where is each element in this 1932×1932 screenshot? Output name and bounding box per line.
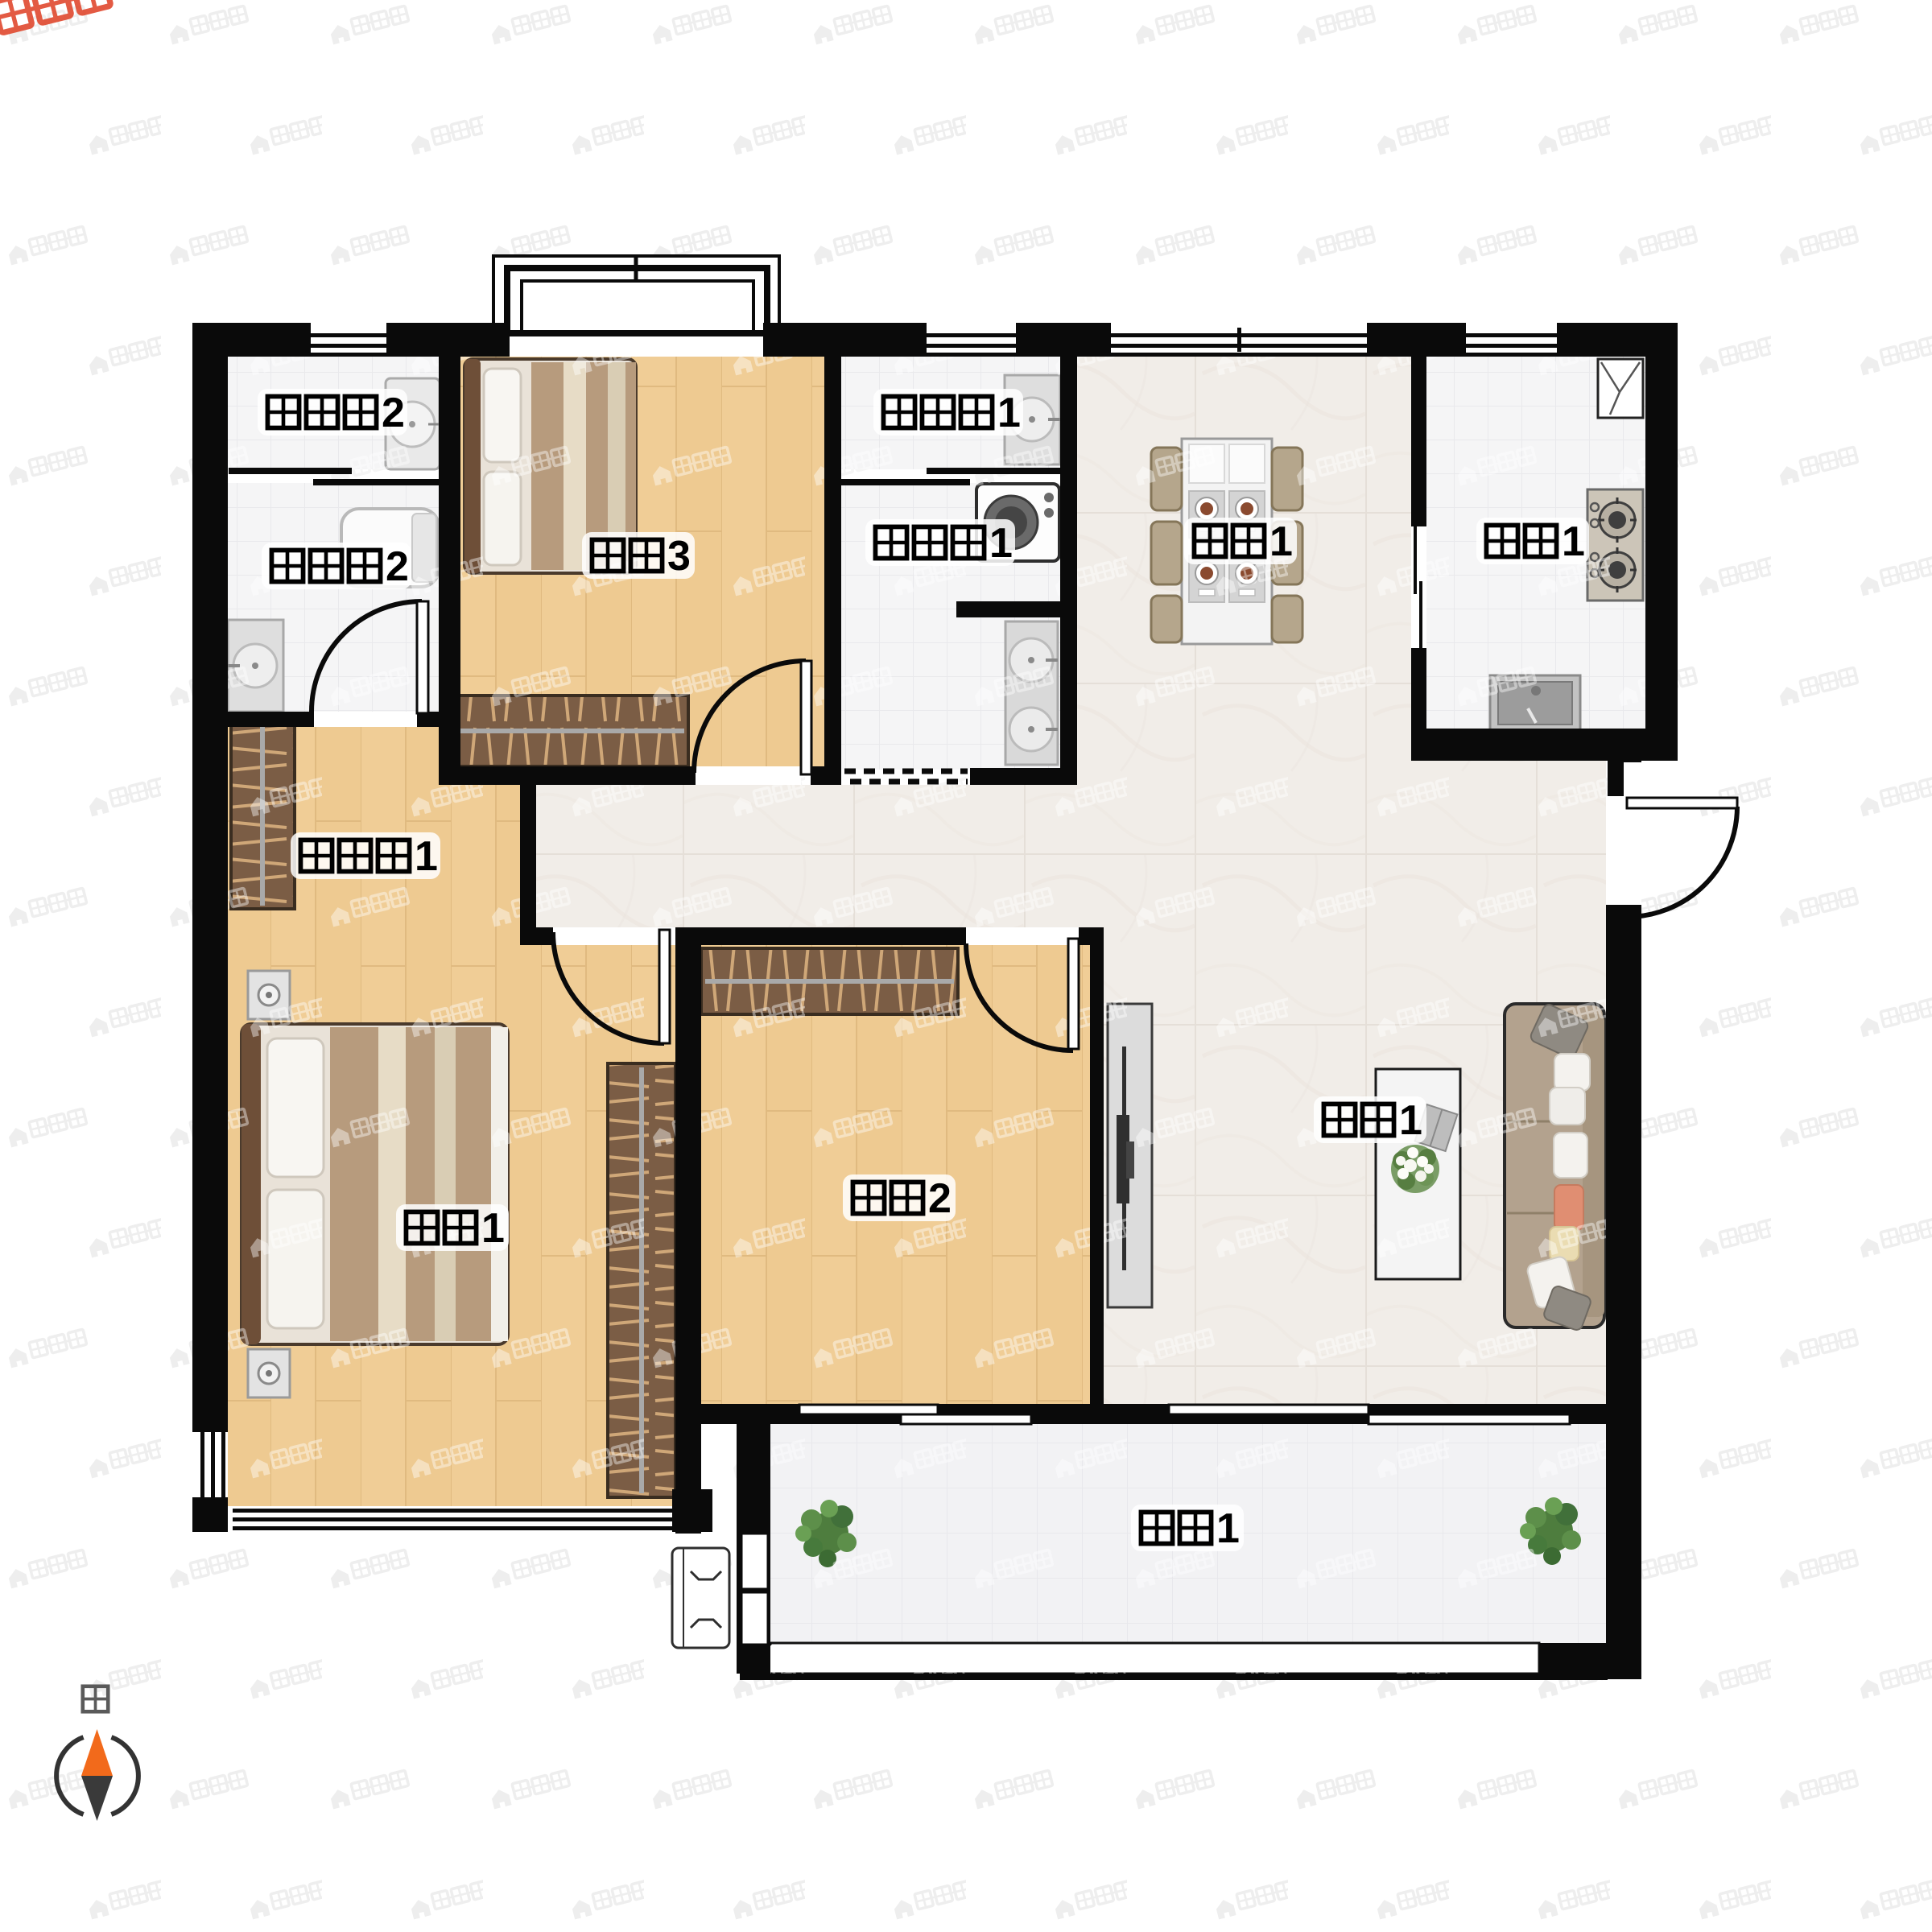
svg-text:1: 1 — [1216, 1505, 1240, 1552]
svg-text:1: 1 — [1399, 1097, 1422, 1144]
svg-text:3: 3 — [667, 533, 691, 580]
svg-text:1: 1 — [997, 390, 1021, 436]
svg-text:1: 1 — [1562, 518, 1585, 565]
svg-text:2: 2 — [928, 1175, 952, 1222]
svg-text:2: 2 — [386, 543, 409, 590]
svg-text:2: 2 — [382, 390, 405, 436]
svg-text:1: 1 — [989, 520, 1013, 567]
svg-text:1: 1 — [1269, 518, 1293, 565]
svg-text:1: 1 — [415, 833, 438, 880]
svg-text:1: 1 — [481, 1205, 505, 1252]
